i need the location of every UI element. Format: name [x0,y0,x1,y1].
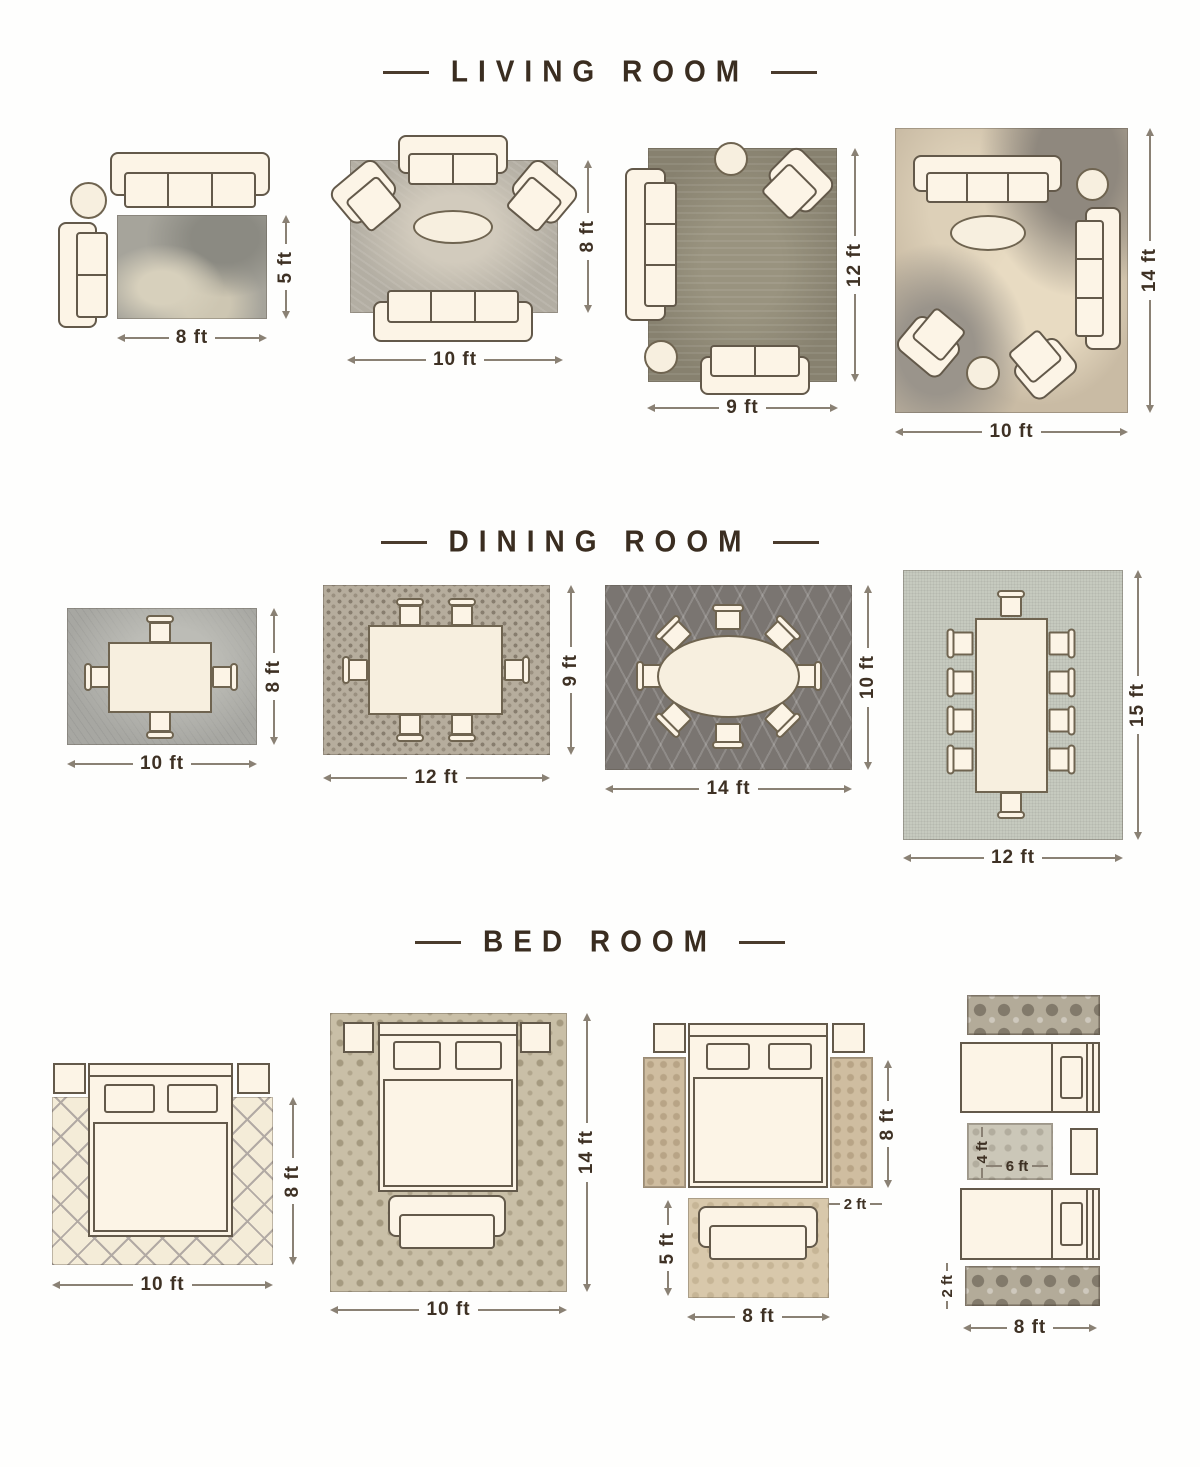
headboard [688,1023,828,1037]
side-table [644,340,678,374]
living-room-layout-3: 12 ft 9 ft [610,130,900,430]
dimension-label: 2 ft [939,1271,956,1302]
dimension-label: 8 ft [735,1306,782,1328]
dimension-label: 8 ft [577,213,599,260]
bed-room-layout-1: 8 ft 10 ft [30,1040,320,1300]
living-room-layout-4: 14 ft 10 ft [880,110,1200,455]
dining-chair [947,746,974,774]
pillow [104,1084,155,1113]
seat-cushions [124,172,255,208]
bed [88,1063,233,1237]
dining-chair [397,714,423,742]
dining-chair [998,590,1024,617]
side-table [714,142,748,176]
dimension-label: 5 ft [657,1225,679,1272]
sofa [1075,207,1121,350]
runner-rug [967,995,1100,1035]
section-title-living-room: LIVING ROOM [0,56,1200,88]
dining-table [368,625,503,715]
bed [378,1022,518,1192]
bed-blanket [383,1079,513,1187]
pillow [768,1043,812,1070]
runner-rug [830,1057,873,1188]
headboard [88,1063,233,1077]
dimension-label: 10 ft [857,648,879,706]
dimension-label: 5 ft [275,244,297,291]
width-dimension: 12 ft [903,846,1123,870]
dimension-label: 12 ft [984,847,1042,869]
width-dimension: 8 ft [117,326,267,350]
seat-cushions [387,290,518,323]
bed-blanket [693,1077,823,1183]
dimension-label: 8 ft [877,1101,899,1148]
coffee-table [413,210,493,244]
pillow [167,1084,218,1113]
height-dimension: 8 ft [281,1097,305,1265]
dining-chair [397,598,423,626]
dining-chair [449,598,475,626]
dimension-label: 8 ft [1007,1317,1054,1339]
dimension-label: 9 ft [560,647,582,694]
dimension-label: 15 ft [1127,676,1149,734]
dining-room-layout-4: 15 ft 12 ft [880,560,1180,875]
dining-chair [1049,746,1076,774]
nightstand [237,1063,270,1094]
nightstand [343,1022,374,1053]
bed-room-layout-3: 8 ft 2 ft 5 ft 8 ft [630,1010,925,1335]
dimension-label: 8 ft [169,327,216,349]
seat-cushions [399,1214,496,1249]
nightstand [832,1023,865,1053]
bench [698,1206,818,1260]
dimension-label: 8 ft [282,1158,304,1205]
foot-rug-width-dimension: 8 ft [687,1305,830,1329]
side-table [70,182,107,219]
nightstand [53,1063,86,1094]
width-dimension: 10 ft [52,1273,273,1297]
runner-rug [643,1057,686,1188]
width-dimension: 10 ft [347,348,563,372]
height-dimension: 8 ft [576,160,600,313]
between-rug-width-dimension: 6 ft [986,1154,1048,1178]
nightstand [653,1023,686,1053]
foot-rug-height-dimension: 5 ft [656,1200,680,1296]
seat-cushions [408,153,498,185]
coffee-table [950,215,1026,251]
section-title-text: BED ROOM [483,925,717,960]
dimension-label: 14 ft [576,1123,598,1181]
title-dash [383,71,429,74]
bed-blanket-edge [1051,1188,1053,1260]
dining-chair [1049,669,1076,697]
seat-cushions [709,1225,807,1260]
width-dimension: 14 ft [605,777,852,801]
seat-cushions [644,182,677,307]
width-dimension: 10 ft [67,752,257,776]
dimension-label: 10 ft [133,1274,191,1296]
title-dash [773,541,819,544]
runner-width-dimension: 2 ft [828,1192,882,1216]
width-dimension: 12 ft [323,766,550,790]
nightstand [520,1022,551,1053]
dining-table [975,618,1048,793]
title-dash [739,941,785,944]
headboard [1086,1188,1094,1260]
pillow [455,1041,502,1070]
section-title-dining-room: DINING ROOM [0,526,1200,558]
between-beds-rug: 4 ft 6 ft [967,1123,1053,1180]
height-dimension: 14 ft [1138,128,1162,413]
runner-rug [965,1266,1100,1306]
sofa [913,155,1062,203]
dining-chair [713,723,743,749]
seat-cushions [926,172,1048,203]
height-dimension: 8 ft [262,608,286,745]
dimension-label: 8 ft [263,653,285,700]
height-dimension: 14 ft [575,1013,599,1292]
dining-room-layout-1: 8 ft 10 ft [40,580,320,790]
dimension-label: 10 ft [419,1299,477,1321]
bed [688,1023,828,1188]
loveseat [398,135,508,185]
sofa [110,152,270,208]
dining-table [657,635,800,718]
twin-bed [960,1188,1100,1260]
pillow [706,1043,750,1070]
pillow [1060,1202,1083,1246]
rug-size-guide: LIVING ROOM 5 ft 8 ft [0,0,1200,1467]
loveseat [58,222,108,328]
width-dimension: 10 ft [330,1298,567,1322]
nightstand [1070,1128,1098,1175]
bench [388,1195,506,1249]
seat-cushions [76,232,108,319]
dimension-label: 10 ft [133,753,191,775]
dimension-label: 2 ft [840,1196,871,1213]
side-table [1076,168,1109,201]
width-dimension: 10 ft [895,420,1128,444]
dimension-label: 12 ft [407,767,465,789]
height-dimension: 9 ft [559,585,583,755]
dining-table [108,642,212,713]
title-dash [381,541,427,544]
dining-room-layout-2: 9 ft 12 ft [310,570,595,795]
section-title-text: LIVING ROOM [451,55,749,90]
section-title-bed-room: BED ROOM [0,926,1200,958]
dimension-label: 10 ft [982,421,1040,443]
title-dash [415,941,461,944]
area-rug [117,215,267,319]
dining-chair [147,615,173,643]
height-dimension: 15 ft [1126,570,1150,840]
runner-length-dimension: 8 ft [876,1060,900,1188]
dining-chair [713,604,743,630]
dining-chair [504,657,530,683]
height-dimension: 5 ft [274,215,298,319]
dining-chair [947,707,974,735]
loveseat [700,345,810,395]
dining-chair [147,711,173,739]
pillow [1060,1056,1083,1099]
dining-chair [947,669,974,697]
runner-height-dimension: 2 ft [935,1263,959,1309]
title-dash [771,71,817,74]
seat-cushions [1075,220,1104,337]
pillow [393,1041,441,1070]
living-room-layout-2: 8 ft 10 ft [330,120,620,380]
bed-blanket [93,1122,228,1232]
seat-cushions [710,345,800,377]
dining-chair [998,792,1024,819]
bed-room-layout-4: 4 ft 6 ft 2 ft 8 ft [930,985,1200,1345]
headboard [378,1022,518,1036]
dimension-label: 12 ft [844,236,866,294]
dining-room-layout-3: 10 ft 14 ft [595,570,890,805]
twin-bed [960,1042,1100,1113]
dimension-label: 14 ft [1139,241,1161,299]
dining-chair [342,657,368,683]
dining-chair [1049,630,1076,658]
runner-width-dimension: 8 ft [963,1316,1097,1340]
height-dimension: 12 ft [843,148,867,382]
height-dimension: 10 ft [856,585,880,770]
living-room-layout-1: 5 ft 8 ft [40,130,340,370]
dimension-label: 9 ft [719,397,766,419]
dining-chair [1049,707,1076,735]
dining-chair [212,664,238,690]
dining-chair [449,714,475,742]
bed-blanket-edge [1051,1042,1053,1113]
sofa [373,290,533,342]
bed-room-layout-2: 14 ft 10 ft [320,1000,610,1330]
width-dimension: 9 ft [647,396,838,420]
dimension-label: 14 ft [699,778,757,800]
dimension-label: 6 ft [1002,1158,1033,1175]
headboard [1086,1042,1094,1113]
side-table [966,356,1000,390]
sofa [625,168,677,321]
section-title-text: DINING ROOM [449,525,752,560]
dining-chair [84,664,110,690]
dimension-label: 10 ft [426,349,484,371]
dining-chair [947,630,974,658]
